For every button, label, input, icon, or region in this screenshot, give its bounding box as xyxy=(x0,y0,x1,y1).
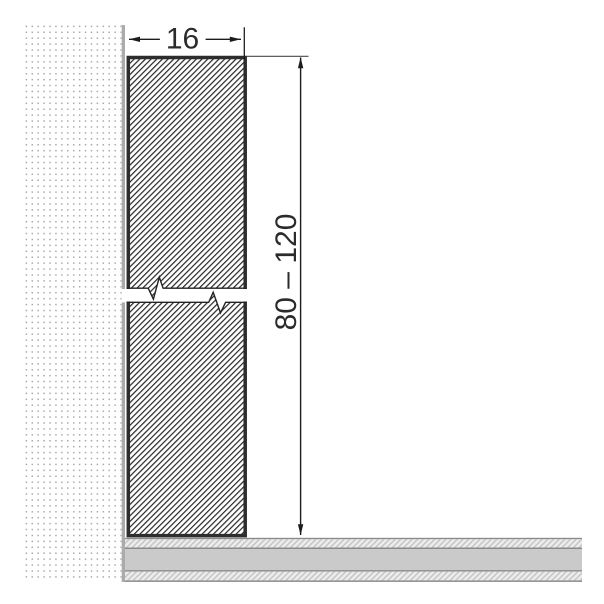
svg-text:16: 16 xyxy=(166,23,199,56)
svg-text:80 – 120: 80 – 120 xyxy=(270,214,303,331)
